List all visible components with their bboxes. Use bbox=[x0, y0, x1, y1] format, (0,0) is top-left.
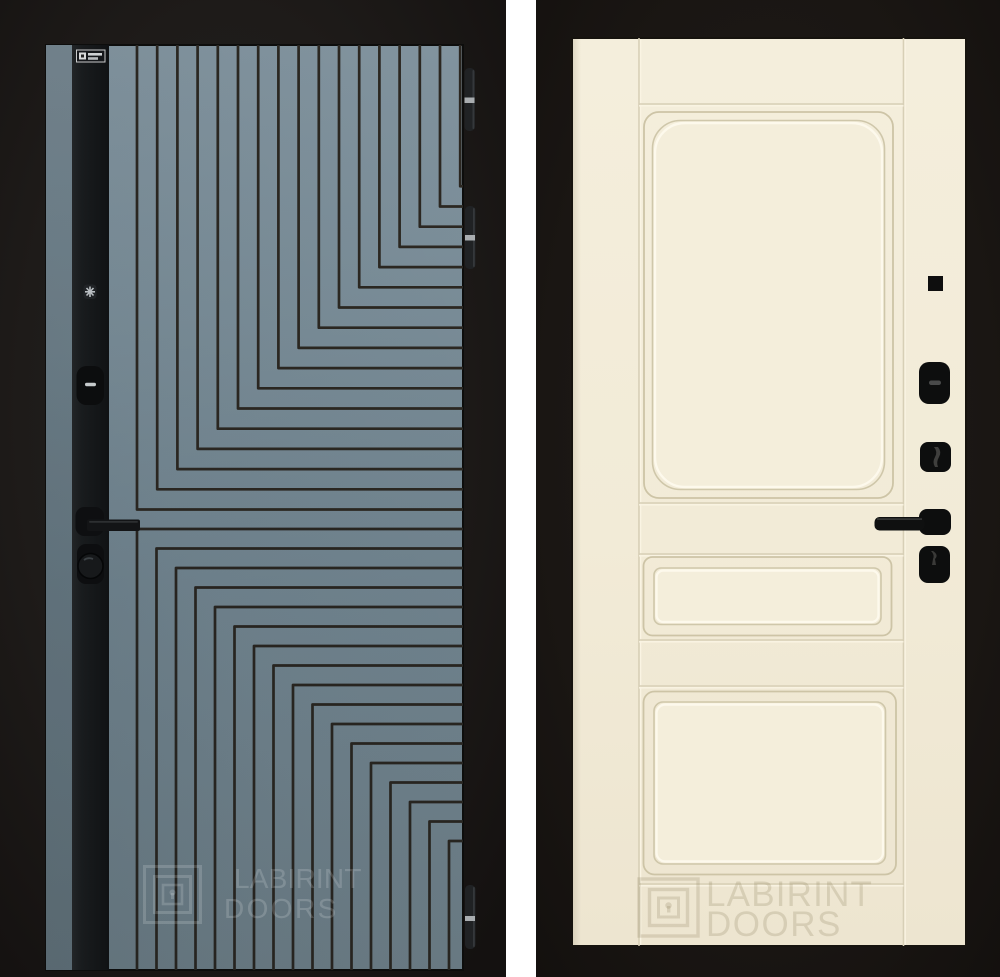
svg-text:DOORS: DOORS bbox=[706, 905, 842, 944]
svg-text:DOORS: DOORS bbox=[224, 893, 339, 924]
svg-text:LABIRINT: LABIRINT bbox=[234, 863, 362, 894]
